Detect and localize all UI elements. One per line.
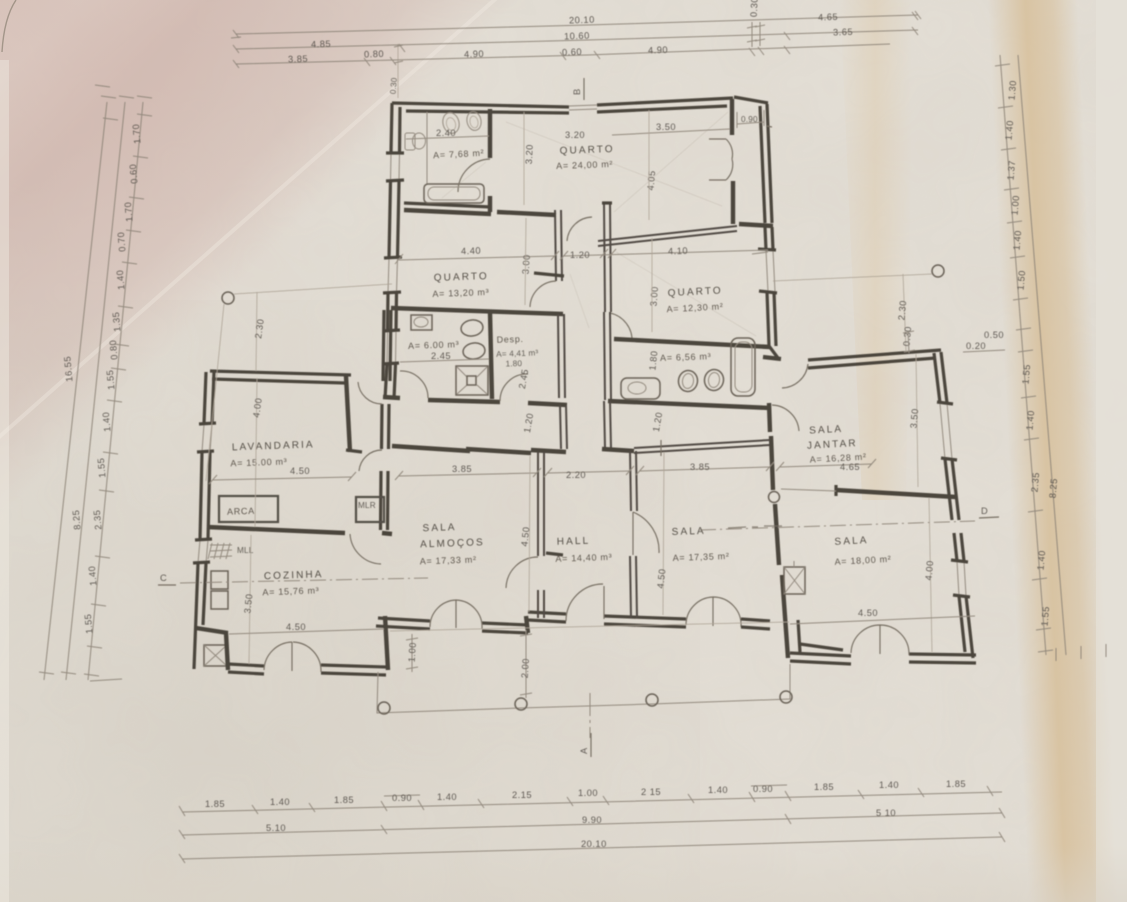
svg-text:4.10: 4.10 (668, 246, 688, 257)
svg-text:3.50: 3.50 (656, 122, 676, 132)
svg-text:1.50: 1.50 (1015, 270, 1027, 291)
svg-text:3.85: 3.85 (452, 464, 472, 474)
svg-text:3.20: 3.20 (524, 144, 535, 165)
svg-text:0.30: 0.30 (901, 326, 913, 347)
svg-text:5.10: 5.10 (266, 823, 286, 833)
svg-text:4.65: 4.65 (818, 12, 838, 23)
svg-text:1.40: 1.40 (708, 785, 728, 795)
svg-text:1.40: 1.40 (101, 411, 113, 432)
svg-text:4.90: 4.90 (464, 49, 484, 60)
svg-text:4.85: 4.85 (311, 39, 331, 50)
svg-text:0.30: 0.30 (749, 0, 760, 17)
svg-text:1.00: 1.00 (407, 642, 418, 663)
svg-text:4.65: 4.65 (840, 462, 860, 472)
svg-text:SALA: SALA (809, 424, 844, 437)
svg-text:C: C (160, 573, 167, 583)
svg-text:QUARTO: QUARTO (559, 144, 614, 157)
svg-text:A= 17,33 m²: A= 17,33 m² (420, 554, 477, 566)
svg-text:A= 14,40 m³: A= 14,40 m³ (555, 552, 612, 564)
svg-text:1.40: 1.40 (87, 565, 99, 586)
svg-text:0.80: 0.80 (108, 339, 120, 360)
svg-text:5 10: 5 10 (876, 808, 896, 818)
svg-text:1.85: 1.85 (814, 782, 834, 792)
svg-text:2.35: 2.35 (92, 509, 104, 530)
svg-text:2.15: 2.15 (512, 790, 532, 800)
svg-text:A= 4,41 m³: A= 4,41 m³ (496, 348, 539, 358)
svg-text:SALA: SALA (422, 522, 456, 534)
svg-text:SALA: SALA (672, 526, 706, 538)
svg-text:A= 6,56 m³: A= 6,56 m³ (660, 351, 712, 363)
svg-text:A= 15.00 m³: A= 15.00 m³ (230, 456, 287, 468)
svg-text:1.70: 1.70 (123, 201, 135, 222)
svg-text:20.10: 20.10 (581, 839, 607, 849)
svg-text:2.40: 2.40 (436, 128, 456, 138)
svg-text:0.60: 0.60 (562, 47, 582, 58)
svg-text:1.55: 1.55 (1020, 364, 1032, 385)
svg-text:20.10: 20.10 (569, 15, 595, 26)
svg-text:1.35: 1.35 (111, 311, 123, 332)
svg-text:2.00: 2.00 (520, 658, 531, 679)
svg-text:COZINHA: COZINHA (264, 569, 324, 582)
svg-text:1.55: 1.55 (105, 369, 117, 390)
svg-text:1.40: 1.40 (1011, 230, 1023, 251)
svg-text:3.50: 3.50 (908, 408, 920, 429)
svg-text:3.50: 3.50 (242, 593, 254, 614)
svg-text:1.85: 1.85 (334, 795, 354, 805)
svg-text:3.65: 3.65 (833, 27, 853, 38)
svg-text:1.00: 1.00 (1009, 195, 1021, 216)
svg-text:1.40: 1.40 (437, 792, 457, 802)
svg-text:1.85: 1.85 (946, 779, 966, 789)
svg-text:8.25: 8.25 (71, 509, 83, 530)
svg-text:1.40: 1.40 (1035, 550, 1047, 571)
svg-text:2 15: 2 15 (641, 787, 661, 797)
svg-text:1.85: 1.85 (205, 799, 225, 809)
svg-text:D: D (981, 506, 988, 516)
svg-text:2.20: 2.20 (566, 470, 586, 480)
svg-text:Desp.: Desp. (496, 334, 523, 345)
svg-text:SALA: SALA (834, 535, 869, 548)
svg-text:A= 15,76 m³: A= 15,76 m³ (262, 585, 319, 597)
svg-text:1.55: 1.55 (1039, 606, 1051, 627)
svg-text:3.00: 3.00 (521, 254, 532, 275)
svg-text:10.60: 10.60 (564, 31, 590, 42)
svg-text:4.50: 4.50 (290, 466, 310, 476)
svg-text:HALL: HALL (557, 536, 591, 548)
svg-text:1.40: 1.40 (1024, 410, 1036, 431)
svg-text:1.40: 1.40 (879, 780, 899, 790)
svg-text:2.45: 2.45 (431, 351, 451, 361)
svg-text:4.50: 4.50 (519, 526, 531, 547)
svg-text:A: A (579, 747, 589, 754)
svg-text:QUARTO: QUARTO (434, 271, 489, 284)
svg-text:B: B (572, 88, 582, 95)
svg-text:3.85: 3.85 (690, 462, 710, 472)
svg-text:1.40: 1.40 (1003, 120, 1015, 141)
svg-text:3.85: 3.85 (288, 54, 308, 65)
svg-text:0.50: 0.50 (984, 330, 1004, 340)
svg-text:4.05: 4.05 (645, 170, 657, 191)
svg-text:4.00: 4.00 (923, 560, 935, 581)
svg-text:1.80: 1.80 (505, 359, 522, 369)
svg-text:1.55: 1.55 (96, 457, 108, 478)
svg-text:0.90: 0.90 (753, 784, 773, 794)
svg-text:0.70: 0.70 (116, 231, 128, 252)
svg-text:3.20: 3.20 (565, 130, 585, 140)
svg-text:A= 13,20 m³: A= 13,20 m³ (432, 287, 489, 299)
svg-text:2.35: 2.35 (1029, 472, 1041, 493)
svg-text:A= 6.00 m³: A= 6.00 m³ (408, 339, 460, 351)
svg-text:A= 24,00 m²: A= 24,00 m² (556, 159, 613, 171)
svg-text:1.55: 1.55 (83, 613, 95, 634)
svg-text:1.37: 1.37 (1005, 160, 1017, 181)
svg-text:1.30: 1.30 (1006, 80, 1018, 101)
svg-text:0.80: 0.80 (364, 49, 384, 60)
svg-text:1.00: 1.00 (578, 788, 598, 798)
svg-text:1.70: 1.70 (131, 123, 143, 144)
svg-text:9.90: 9.90 (582, 815, 602, 825)
svg-text:8.25: 8.25 (1047, 478, 1059, 499)
svg-text:A= 17,35 m²: A= 17,35 m² (672, 551, 729, 563)
svg-text:2.30: 2.30 (896, 300, 908, 321)
svg-text:4.50: 4.50 (286, 622, 306, 632)
svg-text:3.00: 3.00 (649, 286, 660, 307)
svg-text:0.60: 0.60 (128, 163, 140, 184)
svg-text:0.30: 0.30 (388, 77, 398, 95)
svg-text:1.40: 1.40 (270, 797, 290, 807)
svg-text:4.50: 4.50 (655, 568, 667, 589)
svg-text:0.90: 0.90 (741, 115, 758, 124)
svg-text:1.20: 1.20 (570, 250, 590, 260)
svg-text:0.90: 0.90 (392, 793, 412, 803)
svg-text:4.40: 4.40 (461, 246, 481, 257)
svg-text:MLR: MLR (358, 501, 376, 510)
svg-text:1.40: 1.40 (115, 269, 127, 290)
svg-text:1.80: 1.80 (647, 350, 659, 371)
svg-text:4.90: 4.90 (648, 45, 668, 56)
svg-text:ALMOÇOS: ALMOÇOS (420, 537, 485, 550)
svg-text:4.50: 4.50 (858, 608, 878, 618)
svg-text:ARCA: ARCA (227, 506, 255, 517)
svg-text:0.20: 0.20 (966, 341, 986, 351)
svg-text:MLL: MLL (237, 546, 254, 555)
